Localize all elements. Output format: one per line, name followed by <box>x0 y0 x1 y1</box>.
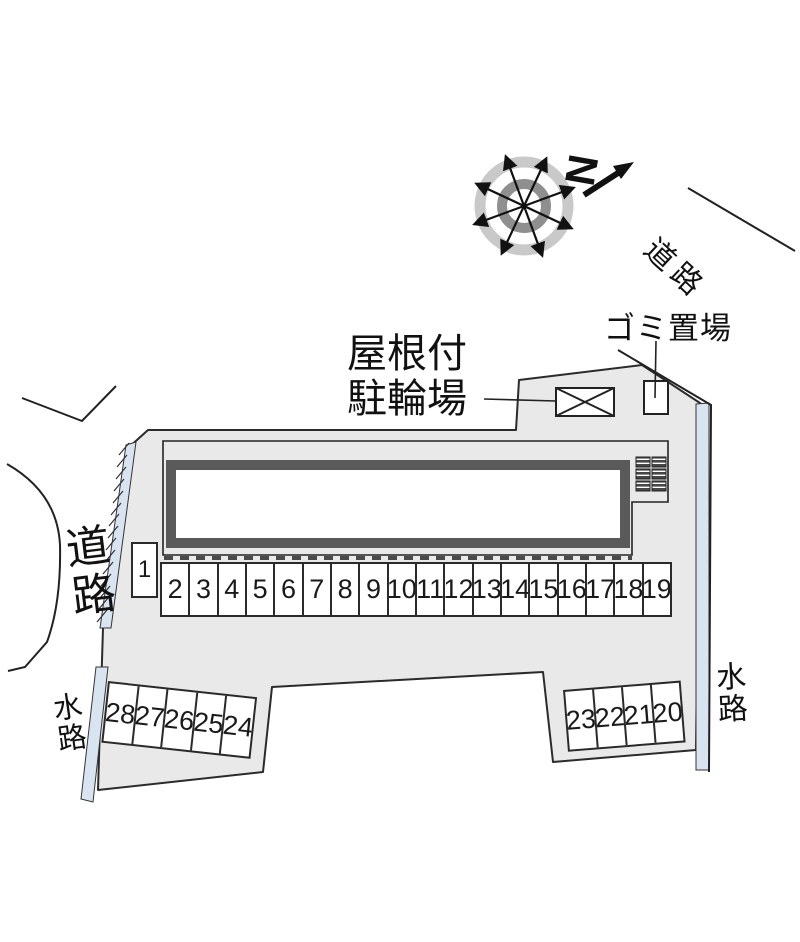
parking-space-19: 19 <box>642 564 670 615</box>
waterway-left-label: 水路 <box>42 689 92 756</box>
road-corner-top-left <box>22 386 116 421</box>
bicycle-parking-marker <box>556 388 614 416</box>
garbage-area-label: ゴミ置場 <box>604 303 732 348</box>
parking-space-17: 17 <box>585 564 613 615</box>
parking-space-6: 6 <box>273 564 301 615</box>
waterway-right-label: 水路 <box>704 660 751 726</box>
parking-space-8: 8 <box>330 564 358 615</box>
parking-space-7: 7 <box>302 564 330 615</box>
parking-space-18: 18 <box>613 564 641 615</box>
parking-space-11: 11 <box>415 564 443 615</box>
bicycle-parking-label-line1: 屋根付 <box>347 332 467 376</box>
parking-space-22: 22 <box>592 687 626 747</box>
building <box>171 465 625 543</box>
parking-space-9: 9 <box>358 564 386 615</box>
garbage-leader-line <box>655 341 656 398</box>
parking-row-main: 2345678910111213141516171819 <box>160 562 672 617</box>
parking-space-13: 13 <box>472 564 500 615</box>
parking-space-10: 10 <box>387 564 415 615</box>
parking-space-24: 24 <box>219 696 255 757</box>
parking-block-southeast: 23222120 <box>563 681 686 752</box>
road-line-top-right <box>688 188 795 251</box>
parking-space-14: 14 <box>500 564 528 615</box>
bicycle-parking-label-line2: 駐輪場 <box>347 377 467 421</box>
parking-space-3: 3 <box>188 564 216 615</box>
road-left-label: 道路 <box>48 520 123 623</box>
road-curve-left <box>7 464 60 671</box>
parking-space-20: 20 <box>650 683 684 743</box>
site-plan-drawing <box>0 0 800 942</box>
parking-space-4: 4 <box>217 564 245 615</box>
parking-space-16: 16 <box>557 564 585 615</box>
parking-space-1: 1 <box>131 542 158 598</box>
parking-space-21: 21 <box>621 685 655 745</box>
site-plan-canvas: ゴミ置場 屋根付駐輪場 道路 道路 水路 水路 N 1 234567891011… <box>0 0 800 942</box>
parking-space-5: 5 <box>245 564 273 615</box>
bicycle-parking-label: 屋根付駐輪場 <box>347 332 467 422</box>
parking-space-2: 2 <box>162 564 188 615</box>
parking-space-12: 12 <box>443 564 471 615</box>
parking-space-15: 15 <box>528 564 556 615</box>
compass-icon <box>475 157 634 255</box>
